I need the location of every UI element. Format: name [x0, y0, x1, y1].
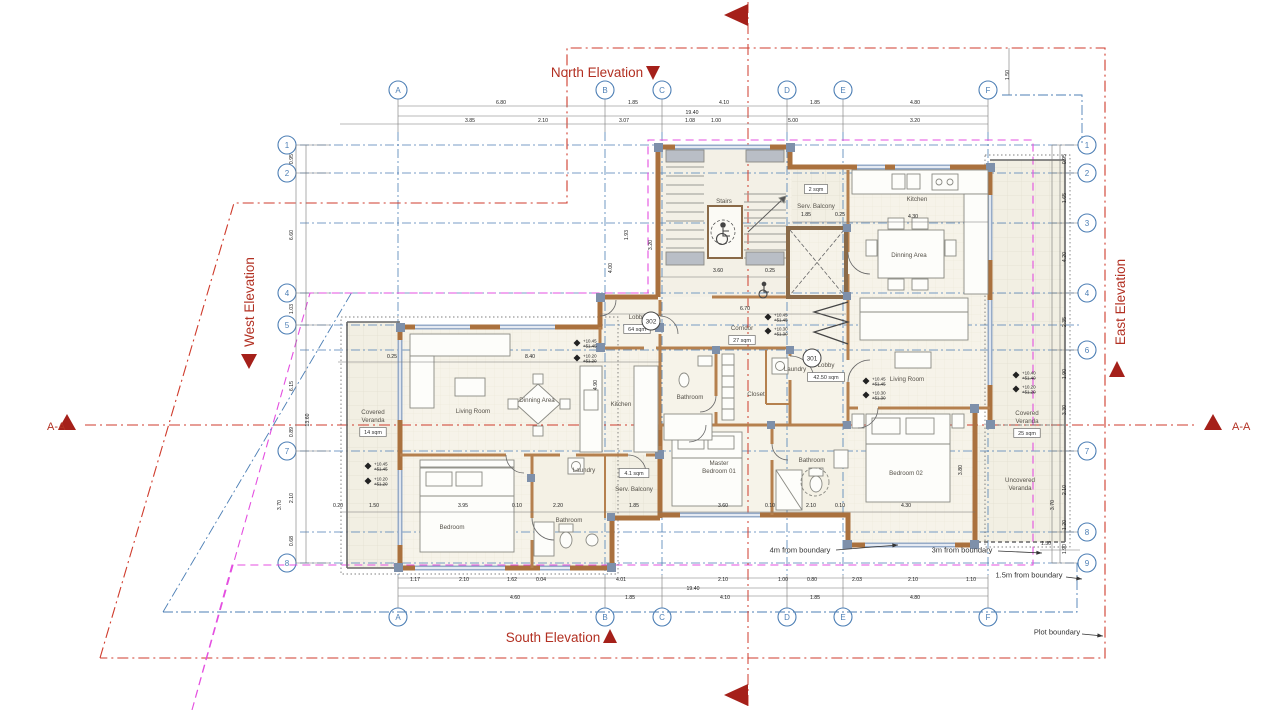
grid-bubble-label: A	[395, 86, 401, 95]
room-label-line2: Bedroom 01	[702, 468, 736, 475]
west-elevation-label: West Elevation	[242, 257, 257, 347]
dimension-label: 0.10	[765, 503, 775, 509]
east-elevation-triangle-icon	[1109, 361, 1125, 377]
dimension-label: 3.20	[648, 240, 654, 250]
room-label-line2: Veranda	[1015, 418, 1039, 425]
lobby-corridor-floor	[600, 297, 790, 348]
south-elevation-label: South Elevation	[506, 630, 601, 645]
sink-right	[834, 450, 848, 468]
grid-bubble-label: 1	[1085, 141, 1090, 150]
dimension-label: 2.10	[908, 577, 918, 583]
dimension-label: 1.93	[624, 230, 630, 240]
level-value-bottom: +51.45	[583, 344, 597, 349]
dimension-label: 6.70	[740, 306, 750, 312]
kitchen-counter-right-2	[964, 194, 988, 294]
room-label: Kitchen	[907, 196, 928, 203]
grid-bubble-label: 4	[285, 289, 290, 298]
dimension-label: 4.20	[1062, 252, 1068, 262]
dimension-label: 0.10	[512, 503, 522, 509]
level-value-bottom: +51.20	[1022, 390, 1036, 395]
dimension-label: 4.00	[608, 263, 614, 273]
dimension-label: 0.89	[289, 427, 295, 437]
room-label: Covered	[361, 409, 385, 416]
room-area-tag: 25 sqm	[1018, 431, 1036, 437]
dimension-label: 2.03	[852, 577, 862, 583]
dimension-label: 6.60	[289, 230, 295, 240]
kitchen-sink-left	[584, 390, 598, 410]
dimension-label: 2.10	[718, 577, 728, 583]
room-label: Master	[710, 460, 729, 467]
tub-mid	[664, 414, 712, 440]
level-value-bottom: +51.45	[774, 318, 788, 323]
dimension-label: 1.85	[625, 595, 635, 601]
dimension-label: 3.60	[718, 503, 728, 509]
dimension-label: 0.95	[289, 154, 295, 164]
setback-line-blue-bottom	[163, 563, 1077, 612]
floor-plan-canvas: AABBCCDDEEFF12457812346789	[0, 0, 1280, 710]
dimension-label: 1.62	[507, 577, 517, 583]
room-area-tag: 64 sqm	[628, 327, 646, 333]
room-label: Bathroom	[677, 394, 704, 401]
dimension-label: 19.40	[687, 586, 700, 592]
grid-bubble-label: F	[986, 86, 991, 95]
grid-bubble-label: 2	[1085, 169, 1090, 178]
boundary-annotation-label: 3m from boundary	[932, 546, 993, 555]
dimension-label: 1.85	[628, 100, 638, 106]
dimension-label: 1.85	[810, 595, 820, 601]
room-label: Bedroom 02	[889, 470, 923, 477]
room-label: Serv. Balcony	[615, 486, 654, 493]
dimension-label: 2.35	[1062, 317, 1068, 327]
room-label: Closet	[747, 391, 765, 398]
grid-bubble-label: 6	[1085, 346, 1090, 355]
dimension-label: 1.50	[1005, 70, 1011, 80]
dimension-label: 1.00	[711, 118, 721, 124]
section-flag-top-icon	[724, 4, 748, 26]
dimension-label: 2.10	[1062, 485, 1068, 495]
room-area-tag: 2 sqm	[809, 187, 824, 193]
dimension-label: 4.01	[616, 577, 626, 583]
dimension-label: 3.70	[277, 500, 283, 510]
dimension-label: 4.30	[908, 214, 918, 220]
dimension-label: 1.50	[369, 503, 379, 509]
room-label: Dinning Area	[519, 397, 555, 404]
boundary-annotation-label: Plot boundary	[1034, 628, 1081, 637]
dimension-label: 2.10	[806, 503, 816, 509]
grid-bubble-label: A	[395, 613, 401, 622]
kitchen-counter-left-2	[634, 366, 658, 452]
sink-mid	[698, 356, 712, 366]
dimension-label: 1.20	[1062, 520, 1068, 530]
headboard-left	[420, 460, 514, 467]
unit-tag-label: 301	[807, 356, 818, 363]
dimension-label: 6.15	[289, 381, 295, 391]
grid-bubble-label: F	[986, 613, 991, 622]
grid-bubble-label: E	[840, 613, 845, 622]
room-label-line2: Veranda	[361, 417, 385, 424]
room-label: Bedroom	[439, 524, 464, 531]
dimension-label: 1.10	[966, 577, 976, 583]
dimension-label: 4.60	[510, 595, 520, 601]
grid-bubble-label: B	[602, 613, 607, 622]
stair-lift	[708, 206, 742, 258]
dimension-label: 0.80	[807, 577, 817, 583]
dimension-label: 1.50	[1041, 541, 1051, 547]
level-value-bottom: +51.20	[374, 482, 388, 487]
west-elevation-triangle-icon	[241, 354, 257, 369]
grid-bubble-label: 8	[1085, 528, 1090, 537]
toilet-mid	[679, 373, 689, 387]
annotation-leader	[998, 551, 1042, 553]
dimension-label: 13.60	[305, 413, 311, 426]
dimension-label: 0.25	[765, 268, 775, 274]
floor-plan-drawing: AABBCCDDEEFF12457812346789	[0, 0, 1280, 710]
dimension-label: 4.10	[719, 100, 729, 106]
grid-bubble-label: C	[659, 613, 665, 622]
dimension-label: 4.80	[910, 100, 920, 106]
grid-bubble-label: 2	[285, 169, 290, 178]
room-label: Lobby	[818, 362, 836, 369]
dimension-label: 1.65	[1062, 193, 1068, 203]
room-area-tag: 42.50 sqm	[813, 375, 839, 381]
annotation-arrowhead-icon	[1097, 633, 1103, 637]
dimension-label: 0.25	[387, 354, 397, 360]
grid-bubble-label: D	[784, 613, 790, 622]
dimension-label: 0.04	[536, 577, 546, 583]
shower-left	[534, 522, 554, 556]
dimension-label: 19.40	[686, 110, 699, 116]
dimension-label: 3.60	[713, 268, 723, 274]
room-label: Serv. Balcony	[797, 203, 836, 210]
grid-bubble-label: C	[659, 86, 665, 95]
section-aa-left-label: A-A	[47, 421, 66, 433]
room-label: Covered	[1015, 410, 1039, 417]
dimension-label: 3.30	[1062, 405, 1068, 415]
north-elevation-label: North Elevation	[551, 65, 643, 80]
boundary-annotation-label: 1.5m from boundary	[995, 571, 1062, 580]
room-label: Bathroom	[799, 457, 826, 464]
dimension-label: 3.70	[1050, 500, 1056, 510]
dimension-label: 5.00	[788, 118, 798, 124]
level-value-bottom: +51.45	[374, 467, 388, 472]
dimension-label: 4.30	[901, 503, 911, 509]
dimension-label: 1.17	[410, 577, 420, 583]
dimension-label: 4.90	[593, 380, 599, 390]
room-label: Living Room	[456, 408, 490, 415]
grid-bubble-label: 4	[1085, 289, 1090, 298]
dimension-label: 6.80	[496, 100, 506, 106]
dimension-label: 4.80	[910, 595, 920, 601]
grid-bubble-label: E	[840, 86, 845, 95]
room-label: Uncovered	[1005, 477, 1035, 484]
grid-bubble-label: 7	[1085, 447, 1090, 456]
level-value-bottom: +51.45	[872, 382, 886, 387]
room-area-tag: 4.1 sqm	[624, 471, 644, 477]
section-flag-bottom-icon	[724, 684, 748, 706]
grid-bubble-label: D	[784, 86, 790, 95]
room-label: Corridor	[731, 325, 753, 332]
toilet-right	[810, 476, 822, 492]
south-elevation-triangle-icon	[603, 629, 617, 643]
dimension-label: 0.10	[835, 503, 845, 509]
dimension-label: 3.85	[465, 118, 475, 124]
boundary-annotation-label: 4m from boundary	[770, 546, 831, 555]
room-label: Living Room	[890, 376, 924, 383]
coffee-table-left	[455, 378, 485, 396]
level-value-bottom: +51.30	[872, 396, 886, 401]
dimension-label: 0.95	[1062, 154, 1068, 164]
dimension-label: 1.90	[1062, 544, 1068, 554]
room-area-tag: 27 sqm	[733, 338, 751, 344]
dimension-label: 1.03	[289, 304, 295, 314]
dimension-label: 2.10	[459, 577, 469, 583]
sofa-left	[410, 334, 510, 356]
dimension-label: 8.40	[525, 354, 535, 360]
dimension-label: 3.95	[458, 503, 468, 509]
grid-bubble-label: 1	[285, 141, 290, 150]
dimension-label: 3.20	[910, 118, 920, 124]
dimension-label: 1.90	[1062, 369, 1068, 379]
room-label: Laundry	[573, 467, 596, 474]
coffee-table-right	[895, 352, 931, 368]
dimension-label: 2.10	[289, 493, 295, 503]
dimension-label: 3.07	[619, 118, 629, 124]
dimension-label: 1.00	[778, 577, 788, 583]
dimension-label: 2.20	[553, 503, 563, 509]
grid-bubble-label: B	[602, 86, 607, 95]
stair-landing	[666, 150, 704, 162]
grid-bubble-label: 8	[285, 559, 290, 568]
dimension-label: 0.20	[333, 503, 343, 509]
sofa-left-chaise	[410, 356, 434, 408]
north-elevation-triangle-icon	[646, 66, 660, 80]
annotation-arrowhead-icon	[1036, 551, 1042, 555]
dimension-label: 2.10	[538, 118, 548, 124]
annotation-arrowhead-icon	[1076, 576, 1082, 580]
dimension-label: 0.68	[289, 536, 295, 546]
serv-balcony-top-floor	[792, 170, 848, 228]
dimension-label: 1.85	[801, 212, 811, 218]
grid-bubble-label: 9	[1085, 559, 1090, 568]
grid-bubble-label: 7	[285, 447, 290, 456]
room-label: Kitchen	[611, 401, 632, 408]
section-aa-right-triangle-icon	[1204, 414, 1222, 430]
boundary-annotations: 4m from boundary3m from boundary1.5m fro…	[770, 543, 1103, 637]
dimension-label: 0.25	[835, 212, 845, 218]
level-value-bottom: +51.20	[583, 359, 597, 364]
dimension-label: 3.80	[958, 465, 964, 475]
east-elevation-label: East Elevation	[1113, 259, 1128, 345]
dimension-label: 1.08	[685, 118, 695, 124]
room-label: Laundry	[784, 366, 807, 373]
unit-tag-label: 302	[646, 319, 657, 326]
room-label-line2: Veranda	[1008, 485, 1032, 492]
level-value-bottom: +51.30	[774, 332, 788, 337]
dimension-label: 1.85	[810, 100, 820, 106]
dimension-label: 1.85	[629, 503, 639, 509]
toilet-left	[560, 532, 572, 548]
setback-line-blue-slant	[163, 292, 352, 612]
grid-bubble-label: 5	[285, 321, 290, 330]
sofa-right	[860, 298, 968, 340]
grid-bubble-label: 3	[1085, 219, 1090, 228]
room-label: Dinning Area	[891, 252, 927, 259]
section-aa-right-label: A-A	[1232, 421, 1251, 433]
room-label: Bathroom	[556, 517, 583, 524]
dimension-label: 4.10	[720, 595, 730, 601]
level-value-bottom: +51.40	[1022, 376, 1036, 381]
setback-line-blue-topright	[1002, 95, 1082, 143]
sink-left	[586, 534, 598, 546]
room-area-tag: 14 sqm	[364, 430, 382, 436]
room-label: Stairs	[716, 198, 732, 205]
